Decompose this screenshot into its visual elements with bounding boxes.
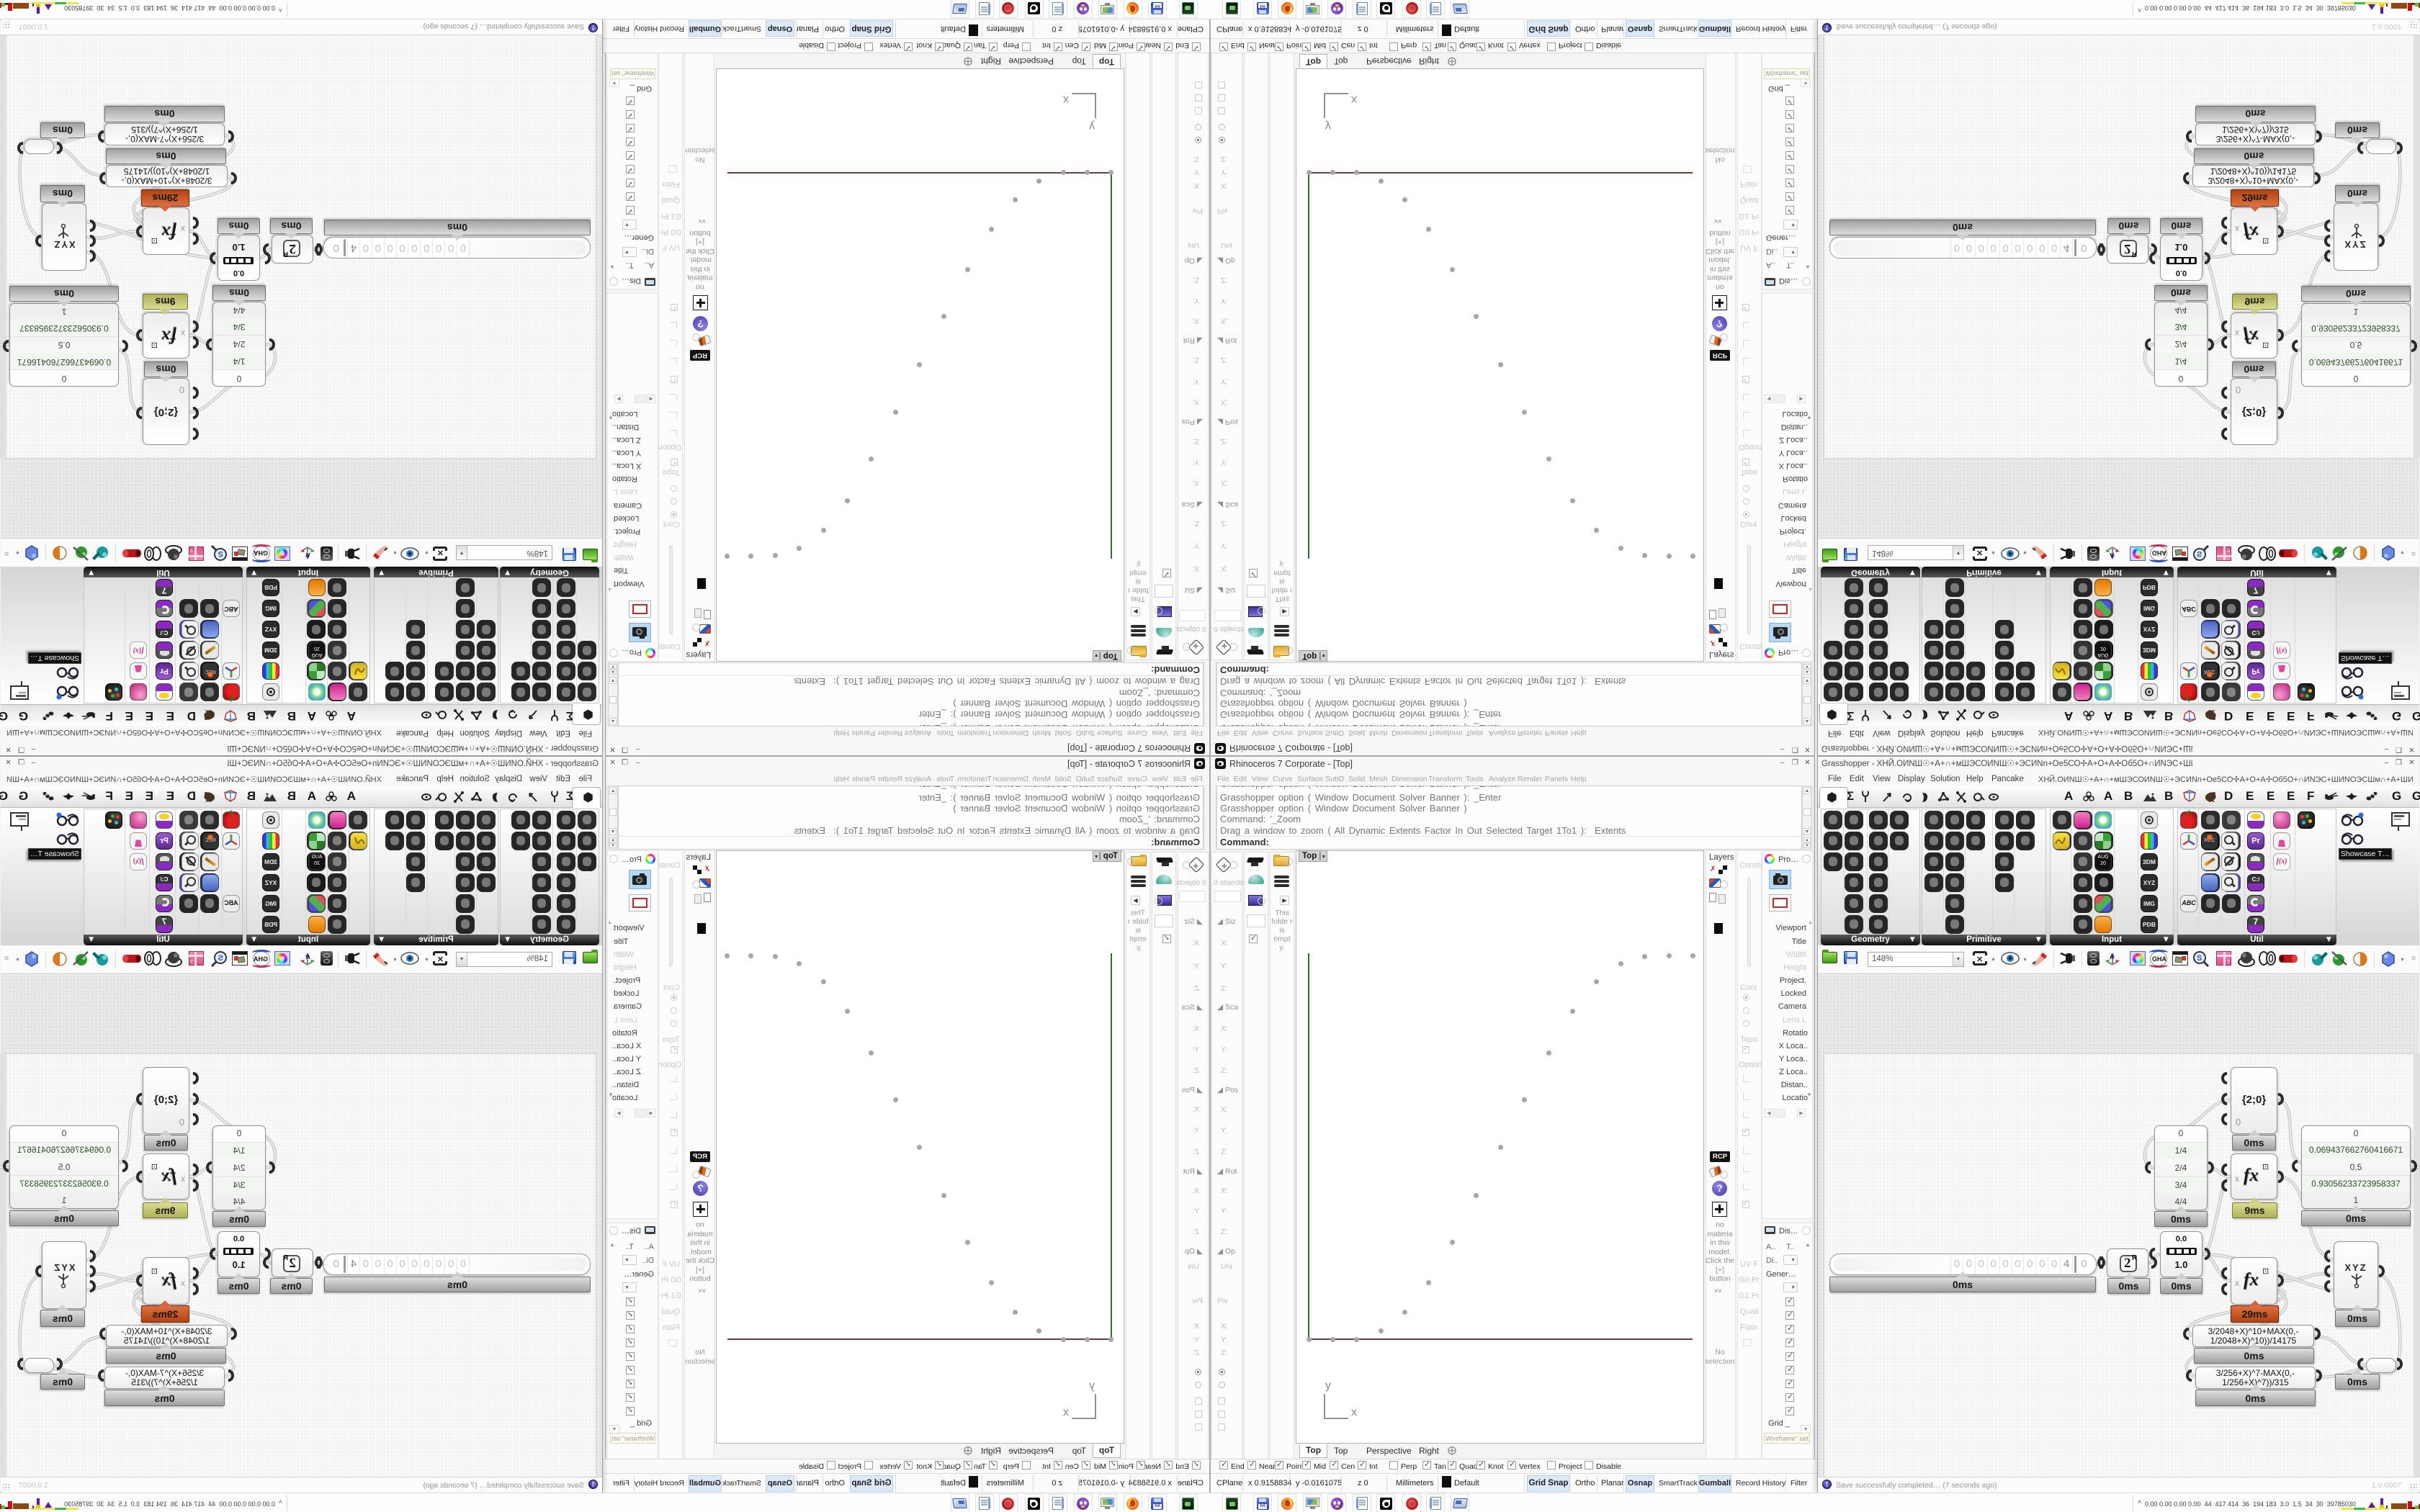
svg-text:A: A — [2110, 552, 2115, 559]
svg-text:S: S — [218, 954, 223, 963]
svg-text:S: S — [2197, 549, 2202, 558]
svg-text:A: A — [305, 953, 310, 960]
svg-text:S: S — [2197, 954, 2202, 963]
svg-text:A: A — [305, 552, 310, 559]
svg-text:S: S — [218, 549, 223, 558]
svg-text:A: A — [2110, 953, 2115, 960]
